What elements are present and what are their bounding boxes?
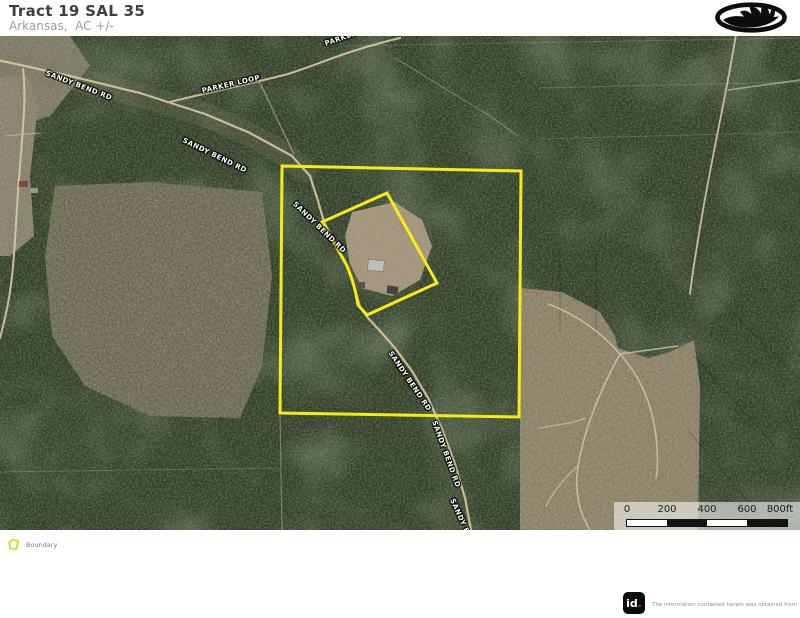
legend-item-boundary: Boundary (26, 541, 57, 549)
land-id-logo: id. (623, 592, 645, 614)
scale-tick: 0 (624, 504, 630, 515)
antler-oval-logo-icon (713, 2, 789, 33)
page-title: Tract 19 SAL 35 (9, 2, 145, 20)
scale-bar: 0 200 400 600 800ft (614, 502, 800, 530)
disclaimer-text: The information contained herein was obt… (652, 589, 800, 618)
scale-tick: 600 (737, 504, 756, 515)
map-report-page: Tract 19 SAL 35 Arkansas, AC +/- (0, 0, 800, 618)
scale-bar-segments (626, 519, 788, 527)
scale-tick: 800ft (767, 504, 793, 515)
scale-tick: 200 (657, 504, 676, 515)
aerial-imagery (0, 36, 800, 530)
scale-tick: 400 (697, 504, 716, 515)
map-canvas[interactable]: SANDY BEND RD PARKER LOOP PARKER LOOP SA… (0, 36, 800, 530)
page-subtitle: Arkansas, AC +/- (9, 19, 114, 33)
boundary-polygon-icon (7, 538, 20, 551)
